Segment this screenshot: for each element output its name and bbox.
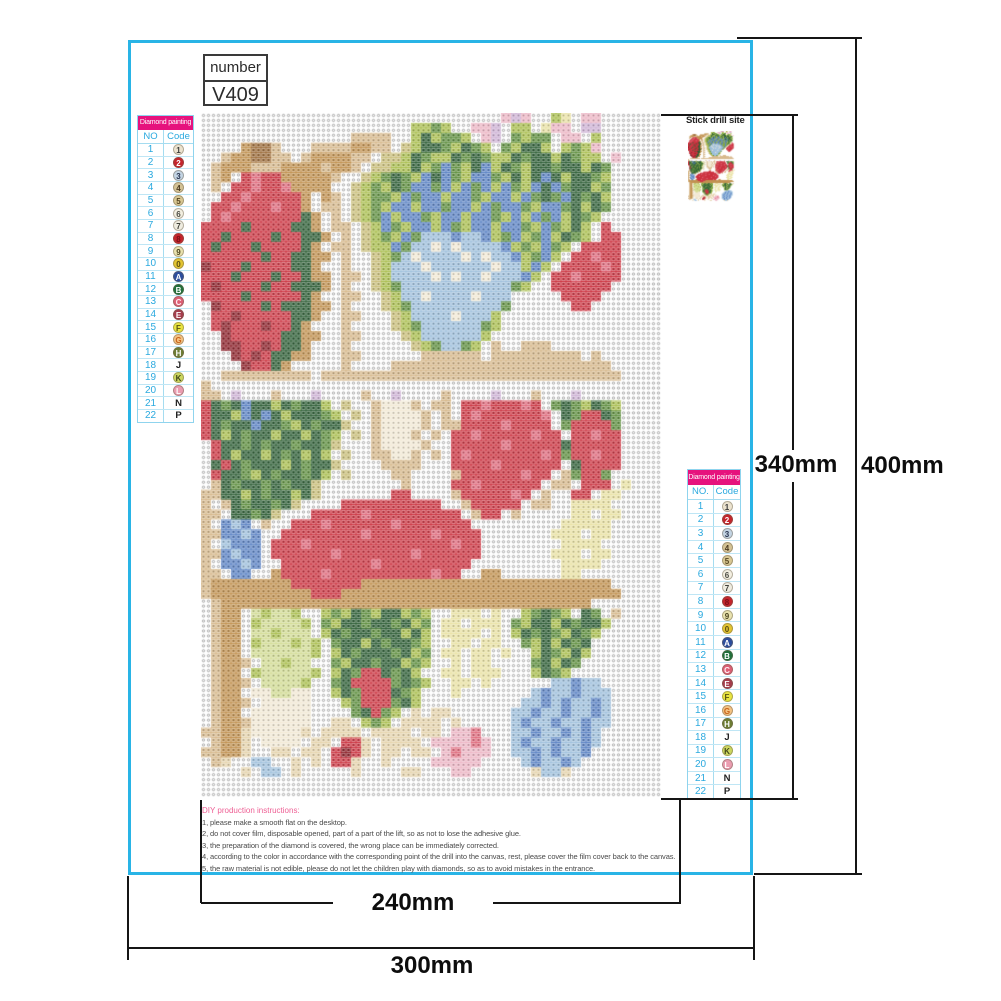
legend-no-cell: 19 xyxy=(138,372,164,384)
legend-rows: 11223344556677889910011A12B13C14E15F16G1… xyxy=(688,500,740,798)
legend-code-cell: K xyxy=(164,372,193,383)
legend-code-chip: 3 xyxy=(722,528,733,539)
legend-code-cell: 6 xyxy=(164,208,193,219)
dimension-tick-300-left xyxy=(127,876,129,960)
legend-row: 44 xyxy=(688,541,740,555)
legend-no-cell: 5 xyxy=(688,554,714,567)
legend-code-chip: E xyxy=(722,678,733,689)
dimension-tick-240-right xyxy=(679,800,681,904)
legend-row: 15F xyxy=(688,690,740,704)
legend-code-chip: 9 xyxy=(173,246,184,257)
diy-instructions: DIY production instructions: 1, please m… xyxy=(202,804,747,874)
legend-row: 20L xyxy=(138,385,193,398)
legend-row: 14E xyxy=(688,677,740,691)
legend-code-chip: K xyxy=(722,745,733,756)
legend-code-chip: A xyxy=(173,271,184,282)
legend-code-chip: N xyxy=(175,398,182,409)
legend-code-chip: 6 xyxy=(173,208,184,219)
legend-no-cell: 3 xyxy=(138,169,164,181)
legend-code-chip: 5 xyxy=(173,195,184,206)
legend-code-cell: 0 xyxy=(164,258,193,269)
legend-row: 21N xyxy=(138,397,193,410)
legend-no-cell: 11 xyxy=(138,271,164,283)
legend-no-cell: 6 xyxy=(688,568,714,581)
dimension-tick-340-top xyxy=(661,114,798,116)
legend-code-chip: 6 xyxy=(722,569,733,580)
legend-no-cell: 2 xyxy=(688,514,714,527)
legend-no-cell: 8 xyxy=(138,233,164,245)
legend-code-chip: 1 xyxy=(722,501,733,512)
legend-code-chip: 8 xyxy=(173,233,184,244)
legend-no-cell: 12 xyxy=(688,650,714,663)
legend-row: 12B xyxy=(138,283,193,296)
legend-row: 88 xyxy=(138,233,193,246)
legend-code-cell: 2 xyxy=(714,514,740,525)
legend-code-cell: C xyxy=(164,296,193,307)
legend-code-chip: C xyxy=(722,664,733,675)
legend-code-cell: 6 xyxy=(714,569,740,580)
legend-code-chip: H xyxy=(722,718,733,729)
legend-code-chip: G xyxy=(173,334,184,345)
legend-row: 55 xyxy=(688,554,740,568)
design-number: V409 xyxy=(205,82,266,106)
legend-code-chip: B xyxy=(722,650,733,661)
legend-code-chip: 7 xyxy=(173,220,184,231)
legend-code-cell: A xyxy=(714,637,740,648)
legend-code-cell: H xyxy=(164,347,193,358)
legend-code-cell: 0 xyxy=(714,623,740,634)
legend-code-chip: N xyxy=(724,773,731,784)
number-box: number V409 xyxy=(203,54,268,106)
dimension-line-300-horizontal xyxy=(128,947,755,949)
legend-no-cell: 20 xyxy=(688,758,714,771)
legend-no-cell: 17 xyxy=(138,347,164,359)
legend-row: 11 xyxy=(138,144,193,157)
legend-no-cell: 10 xyxy=(138,258,164,270)
dimension-label-340mm: 340mm xyxy=(754,450,838,482)
legend-code-chip: K xyxy=(173,372,184,383)
legend-no-cell: 6 xyxy=(138,207,164,219)
legend-code-chip: C xyxy=(173,296,184,307)
legend-code-cell: K xyxy=(714,745,740,756)
legend-code-cell: E xyxy=(714,678,740,689)
dimension-tick-300-right xyxy=(753,876,755,960)
legend-no-cell: 18 xyxy=(138,359,164,371)
legend-row: 66 xyxy=(688,568,740,582)
legend-no-header: NO xyxy=(138,130,164,143)
legend-no-cell: 16 xyxy=(138,334,164,346)
legend-no-cell: 19 xyxy=(688,745,714,758)
instructions-title: DIY production instructions: xyxy=(202,804,747,817)
legend-no-header: NO. xyxy=(688,485,714,499)
legend-row: 13C xyxy=(688,663,740,677)
dimension-label-400mm: 400mm xyxy=(861,451,951,483)
legend-code-chip: 8 xyxy=(722,596,733,607)
legend-title: Diamond painting xyxy=(138,116,193,130)
legend-code-chip: P xyxy=(175,410,181,421)
legend-code-chip: 5 xyxy=(722,555,733,566)
legend-code-cell: G xyxy=(714,705,740,716)
legend-code-chip: H xyxy=(173,347,184,358)
legend-code-cell: F xyxy=(714,691,740,702)
legend-row: 22P xyxy=(138,410,193,422)
legend-code-cell: N xyxy=(714,773,740,784)
legend-row: 19K xyxy=(138,372,193,385)
legend-code-cell: C xyxy=(714,664,740,675)
legend-code-chip: J xyxy=(176,360,181,371)
legend-no-cell: 5 xyxy=(138,195,164,207)
legend-row: 22 xyxy=(138,157,193,170)
legend-code-cell: P xyxy=(714,786,740,797)
legend-code-chip: A xyxy=(722,637,733,648)
legend-no-cell: 7 xyxy=(138,220,164,232)
legend-code-cell: H xyxy=(714,718,740,729)
legend-row: 55 xyxy=(138,195,193,208)
legend-code-cell: 5 xyxy=(164,195,193,206)
legend-code-chip: F xyxy=(173,322,184,333)
legend-code-cell: J xyxy=(714,732,740,743)
legend-no-cell: 17 xyxy=(688,718,714,731)
legend-code-chip: 9 xyxy=(722,610,733,621)
legend-code-cell: F xyxy=(164,322,193,333)
legend-column-headers: NO. Code xyxy=(688,485,740,500)
legend-code-chip: E xyxy=(173,309,184,320)
legend-code-chip: G xyxy=(722,705,733,716)
legend-code-cell: P xyxy=(164,410,193,421)
legend-row: 99 xyxy=(138,245,193,258)
legend-row: 77 xyxy=(688,582,740,596)
legend-no-cell: 15 xyxy=(688,690,714,703)
legend-row: 77 xyxy=(138,220,193,233)
legend-row: 12B xyxy=(688,650,740,664)
dimension-tick-240-left xyxy=(200,800,202,903)
dimension-label-300mm: 300mm xyxy=(352,951,512,981)
legend-code-chip: 1 xyxy=(173,144,184,155)
legend-code-chip: 4 xyxy=(722,542,733,553)
dimension-tick-340-bottom xyxy=(661,798,798,800)
legend-code-cell: B xyxy=(714,650,740,661)
legend-code-chip: 0 xyxy=(722,623,733,634)
legend-title: Diamond painting xyxy=(688,470,740,485)
legend-code-chip: 4 xyxy=(173,182,184,193)
legend-code-cell: 9 xyxy=(164,246,193,257)
legend-row: 17H xyxy=(688,718,740,732)
legend-row: 17H xyxy=(138,347,193,360)
legend-no-cell: 14 xyxy=(688,677,714,690)
legend-code-cell: 5 xyxy=(714,555,740,566)
dimension-line-400-vertical xyxy=(855,38,857,875)
legend-row: 88 xyxy=(688,595,740,609)
legend-code-header: Code xyxy=(164,130,193,143)
legend-row: 66 xyxy=(138,207,193,220)
legend-code-chip: 2 xyxy=(173,157,184,168)
legend-table-left: Diamond painting NO Code 112233445566778… xyxy=(137,115,194,423)
legend-row: 20L xyxy=(688,758,740,772)
legend-code-cell: A xyxy=(164,271,193,282)
legend-no-cell: 2 xyxy=(138,157,164,169)
legend-code-chip: P xyxy=(724,786,730,797)
legend-row: 16G xyxy=(138,334,193,347)
legend-row: 44 xyxy=(138,182,193,195)
legend-no-cell: 7 xyxy=(688,582,714,595)
dimension-tick-400-top xyxy=(737,37,862,39)
instruction-line: 4, according to the color in accordance … xyxy=(202,851,747,862)
legend-row: 99 xyxy=(688,609,740,623)
legend-code-chip: 0 xyxy=(173,258,184,269)
number-box-label: number xyxy=(205,56,266,82)
legend-code-cell: L xyxy=(714,759,740,770)
dimension-tick-400-bottom xyxy=(754,873,862,875)
diamond-painting-template-sheet: { "number_box": { "label": "number", "va… xyxy=(0,0,1001,1001)
legend-code-chip: L xyxy=(173,385,184,396)
legend-no-cell: 21 xyxy=(688,772,714,785)
legend-row: 16G xyxy=(688,704,740,718)
instruction-line: 5, the raw material is not edible, pleas… xyxy=(202,863,747,874)
diamond-chart-canvas xyxy=(201,113,661,797)
legend-code-cell: G xyxy=(164,334,193,345)
legend-no-cell: 16 xyxy=(688,704,714,717)
instruction-line: 3, the preparation of the diamond is cov… xyxy=(202,840,747,851)
legend-no-cell: 12 xyxy=(138,283,164,295)
legend-no-cell: 9 xyxy=(138,245,164,257)
stick-drill-thumbnail xyxy=(688,131,738,203)
legend-code-cell: 3 xyxy=(164,170,193,181)
legend-code-cell: N xyxy=(164,398,193,409)
dimension-label-240mm: 240mm xyxy=(333,888,493,918)
legend-no-cell: 14 xyxy=(138,309,164,321)
legend-row: 14E xyxy=(138,309,193,322)
stick-drill-site-label: Stick drill site xyxy=(686,115,761,126)
legend-code-cell: B xyxy=(164,284,193,295)
legend-row: 13C xyxy=(138,296,193,309)
legend-row: 19K xyxy=(688,745,740,759)
legend-code-chip: 7 xyxy=(722,582,733,593)
legend-no-cell: 3 xyxy=(688,527,714,540)
legend-table-right: Diamond painting NO. Code 11223344556677… xyxy=(687,469,741,799)
legend-code-chip: J xyxy=(724,732,729,743)
legend-column-headers: NO Code xyxy=(138,130,193,144)
legend-row: 33 xyxy=(138,169,193,182)
legend-code-chip: L xyxy=(722,759,733,770)
legend-no-cell: 9 xyxy=(688,609,714,622)
legend-no-cell: 1 xyxy=(688,500,714,513)
legend-code-header: Code xyxy=(714,485,740,499)
instructions-lines: 1, please make a smooth flat on the desk… xyxy=(202,817,747,874)
legend-code-cell: 9 xyxy=(714,610,740,621)
legend-code-cell: L xyxy=(164,385,193,396)
legend-row: 100 xyxy=(138,258,193,271)
legend-row: 15F xyxy=(138,321,193,334)
legend-code-cell: 4 xyxy=(164,182,193,193)
legend-row: 18J xyxy=(688,731,740,745)
legend-no-cell: 10 xyxy=(688,622,714,635)
legend-code-cell: 1 xyxy=(714,501,740,512)
legend-code-cell: J xyxy=(164,360,193,371)
legend-row: 100 xyxy=(688,622,740,636)
legend-no-cell: 8 xyxy=(688,595,714,608)
legend-no-cell: 11 xyxy=(688,636,714,649)
legend-no-cell: 13 xyxy=(688,663,714,676)
legend-no-cell: 22 xyxy=(688,785,714,798)
legend-row: 22P xyxy=(688,785,740,798)
legend-no-cell: 20 xyxy=(138,385,164,397)
legend-rows: 11223344556677889910011A12B13C14E15F16G1… xyxy=(138,144,193,422)
legend-row: 21N xyxy=(688,772,740,786)
legend-no-cell: 18 xyxy=(688,731,714,744)
legend-no-cell: 22 xyxy=(138,410,164,422)
legend-no-cell: 4 xyxy=(138,182,164,194)
legend-code-cell: 7 xyxy=(164,220,193,231)
legend-code-cell: 3 xyxy=(714,528,740,539)
legend-code-cell: 2 xyxy=(164,157,193,168)
legend-code-cell: 8 xyxy=(164,233,193,244)
legend-code-cell: 1 xyxy=(164,144,193,155)
legend-no-cell: 1 xyxy=(138,144,164,156)
legend-code-cell: 7 xyxy=(714,582,740,593)
legend-row: 11 xyxy=(688,500,740,514)
instruction-line: 1, please make a smooth flat on the desk… xyxy=(202,817,747,828)
instruction-line: 2, do not cover film, disposable opened,… xyxy=(202,828,747,839)
legend-code-chip: 3 xyxy=(173,170,184,181)
legend-row: 11A xyxy=(138,271,193,284)
legend-row: 18J xyxy=(138,359,193,372)
legend-row: 22 xyxy=(688,514,740,528)
legend-code-cell: 8 xyxy=(714,596,740,607)
legend-code-chip: B xyxy=(173,284,184,295)
legend-code-cell: E xyxy=(164,309,193,320)
legend-no-cell: 15 xyxy=(138,321,164,333)
legend-no-cell: 4 xyxy=(688,541,714,554)
legend-code-chip: 2 xyxy=(722,514,733,525)
legend-no-cell: 13 xyxy=(138,296,164,308)
legend-code-chip: F xyxy=(722,691,733,702)
legend-row: 33 xyxy=(688,527,740,541)
legend-code-cell: 4 xyxy=(714,542,740,553)
legend-no-cell: 21 xyxy=(138,397,164,409)
legend-row: 11A xyxy=(688,636,740,650)
